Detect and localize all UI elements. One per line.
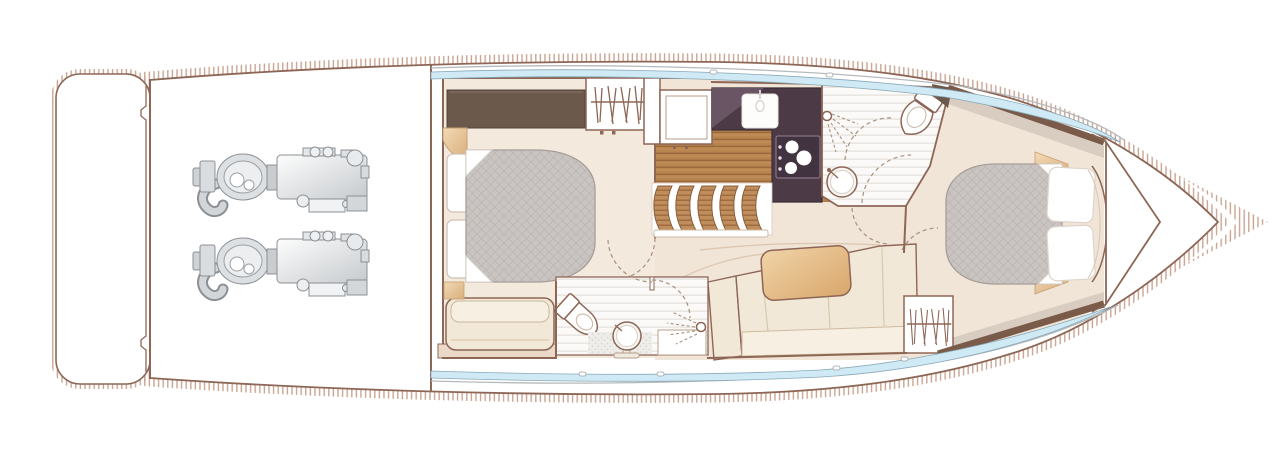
mid-cabin-bed: [447, 150, 595, 282]
staircase: [652, 183, 772, 237]
floorplan-canvas: [0, 0, 1280, 457]
mid-cabin-wardrobe: [447, 90, 585, 128]
day-head-basin-icon: [827, 167, 857, 197]
swim-platform: [56, 74, 150, 384]
yacht-floorplan: [0, 0, 1280, 457]
hob-icon: [776, 136, 820, 178]
sink-icon: [742, 90, 778, 128]
salon-hanging-locker-icon: [904, 296, 953, 353]
salon-table: [760, 245, 851, 301]
hanging-locker-icon: [586, 78, 649, 135]
shower-tray: [658, 330, 706, 355]
